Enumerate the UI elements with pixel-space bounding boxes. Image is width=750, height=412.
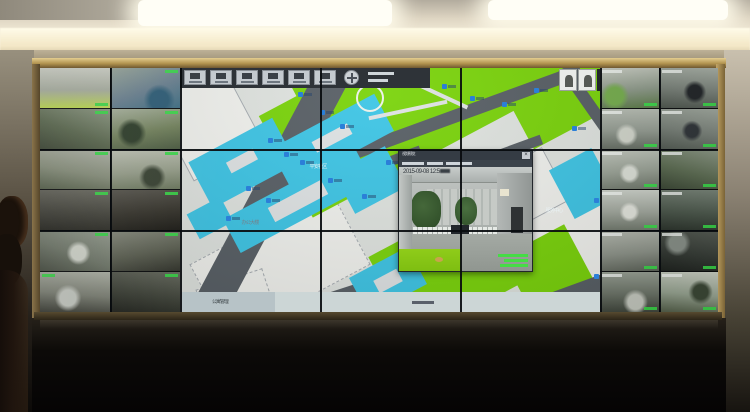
map-toolbar-button[interactable] [262,70,284,85]
map-label: 办公大楼 [242,220,259,225]
map-toolbar-button[interactable] [288,70,310,85]
camera-tile[interactable] [40,109,110,149]
ceiling-corner [0,0,150,20]
camera-name-overlay [644,307,657,310]
monitor-bezel [320,68,322,312]
camera-timestamp-overlay [602,152,622,155]
camera-name-overlay [165,152,178,155]
dog [435,257,443,262]
camera-tile[interactable] [660,231,719,271]
camera-tile[interactable] [600,68,659,108]
map-camera-icon[interactable] [246,186,251,191]
map-toolbar-button[interactable] [184,70,206,85]
map-camera-icon[interactable] [594,198,599,203]
camera-tile[interactable] [40,150,110,190]
live-video-feed: 2015-09-08 12:5 [399,167,532,271]
lawn [399,249,461,271]
popup-info-bar [399,160,532,167]
floor-reflection [40,320,718,329]
control-room-photo: 公寓管理 视频预览 × [0,0,750,412]
info-text-block [427,162,443,165]
camera-tile[interactable] [600,272,659,312]
camera-tile[interactable] [660,109,719,149]
camera-tile[interactable] [111,150,181,190]
camera-name-overlay [95,152,108,155]
camera-name-overlay [703,225,716,228]
camera-name-overlay [95,103,108,106]
map-camera-icon[interactable] [594,274,599,279]
map-camera-icon[interactable] [284,152,289,157]
camera-name-overlay [165,233,178,236]
wall-frame-bottom [34,312,722,320]
map-label: 服务中心 [546,208,563,213]
camera-name-overlay [95,192,108,195]
camera-thumbnail-tile[interactable] [559,69,577,91]
ceiling-light-left [138,0,392,26]
monitor-bezel [600,68,602,312]
status-left-text: 公寓管理 [212,300,228,305]
camera-tile[interactable] [600,109,659,149]
arm [0,270,28,412]
camera-timestamp-overlay [662,70,682,73]
monitor-bezel [180,68,182,312]
map-application[interactable]: 公寓管理 视频预览 × [180,68,600,312]
popup-title-text: 视频预览 [402,152,415,157]
coordinate-readout-line2 [368,79,388,82]
info-text-block [446,162,472,165]
status-center-text [412,301,434,304]
map-toolbar-button[interactable] [314,70,336,85]
camera-tile[interactable] [40,272,110,312]
close-icon[interactable]: × [522,152,530,159]
illegible-digits [440,169,450,173]
monitor-bezel [659,68,661,312]
camera-tile[interactable] [660,68,719,108]
map-camera-icon[interactable] [328,178,333,183]
camera-tile[interactable] [600,190,659,230]
camera-timestamp-overlay [662,233,682,236]
right-wall [724,50,750,412]
monitor-bezel [460,68,462,312]
video-timestamp: 2015-09-08 12:5 [403,169,450,175]
camera-tile[interactable] [660,190,719,230]
wall-frame-top [32,58,726,68]
video-osd-text [498,252,528,267]
person-icon [584,75,592,87]
map-camera-icon[interactable] [502,102,507,107]
camera-timestamp-overlay [602,111,622,114]
camera-tile[interactable] [660,272,719,312]
map-camera-icon[interactable] [362,194,367,199]
map-circle-block [356,84,384,112]
camera-name-overlay [42,274,55,277]
camera-name-overlay [95,111,108,114]
map-toolbar-button[interactable] [210,70,232,85]
camera-tile[interactable] [111,231,181,271]
camera-timestamp-overlay [662,192,682,195]
camera-name-overlay [165,70,178,73]
camera-tile[interactable] [40,190,110,230]
map-camera-icon[interactable] [386,160,391,165]
camera-name-overlay [644,225,657,228]
hand-silhouette [0,192,42,412]
camera-tile[interactable] [111,190,181,230]
camera-name-overlay [165,192,178,195]
map-camera-icon[interactable] [268,138,273,143]
map-status-bar: 公寓管理 [180,292,600,312]
camera-timestamp-overlay [662,111,682,114]
gate-sign [500,189,509,196]
coordinate-readout-line1 [368,72,394,75]
map-toolbar-button[interactable] [236,70,258,85]
camera-timestamp-overlay [602,70,622,73]
camera-name-overlay [703,307,716,310]
map-camera-icon[interactable] [300,160,305,165]
tree [455,197,477,225]
camera-name-overlay [644,266,657,269]
person-icon [565,75,573,87]
map-label: 平安社区 [310,164,327,169]
camera-tile[interactable] [600,150,659,190]
map-camera-icon[interactable] [534,88,539,93]
map-camera-icon[interactable] [340,124,345,129]
map-camera-icon[interactable] [226,216,231,221]
info-text-block [402,162,424,165]
camera-name-overlay [165,274,178,277]
camera-tile[interactable] [111,272,181,312]
map-camera-icon[interactable] [470,96,475,101]
camera-name-overlay [165,111,178,114]
map-camera-icon[interactable] [572,126,577,131]
camera-name-overlay [703,266,716,269]
video-popup-window[interactable]: 视频预览 × [398,150,533,272]
camera-tile[interactable] [600,231,659,271]
camera-name-overlay [703,144,716,147]
monitor-bezel [40,149,718,151]
camera-name-overlay [95,233,108,236]
camera-name-overlay [703,184,716,187]
camera-tile[interactable] [111,109,181,149]
monitor-bezel [110,68,112,312]
camera-tile[interactable] [40,68,110,108]
map-camera-icon[interactable] [298,92,303,97]
camera-timestamp-overlay [662,152,682,155]
camera-timestamp-overlay [602,274,622,277]
popup-title-bar[interactable]: 视频预览 × [399,151,532,160]
pan-dpad-control[interactable] [344,70,359,85]
camera-tile[interactable] [40,231,110,271]
map-camera-icon[interactable] [266,198,271,203]
tree [411,191,441,229]
camera-name-overlay [703,103,716,106]
ceiling-light-right [488,0,728,20]
monitor-bezel [40,230,718,232]
room-shadow [32,318,726,412]
map-camera-icon[interactable] [442,84,447,89]
camera-timestamp-overlay [602,192,622,195]
camera-tile[interactable] [111,68,181,108]
video-wall: 公寓管理 视频预览 × [40,68,718,312]
map-graphics [180,68,600,312]
camera-timestamp-overlay [662,274,682,277]
camera-name-overlay [644,144,657,147]
map-toolbar [180,68,430,88]
camera-thumbnail-tile[interactable] [578,69,596,91]
camera-timestamp-overlay [602,233,622,236]
camera-tile[interactable] [660,150,719,190]
camera-name-overlay [644,103,657,106]
camera-name-overlay [644,184,657,187]
